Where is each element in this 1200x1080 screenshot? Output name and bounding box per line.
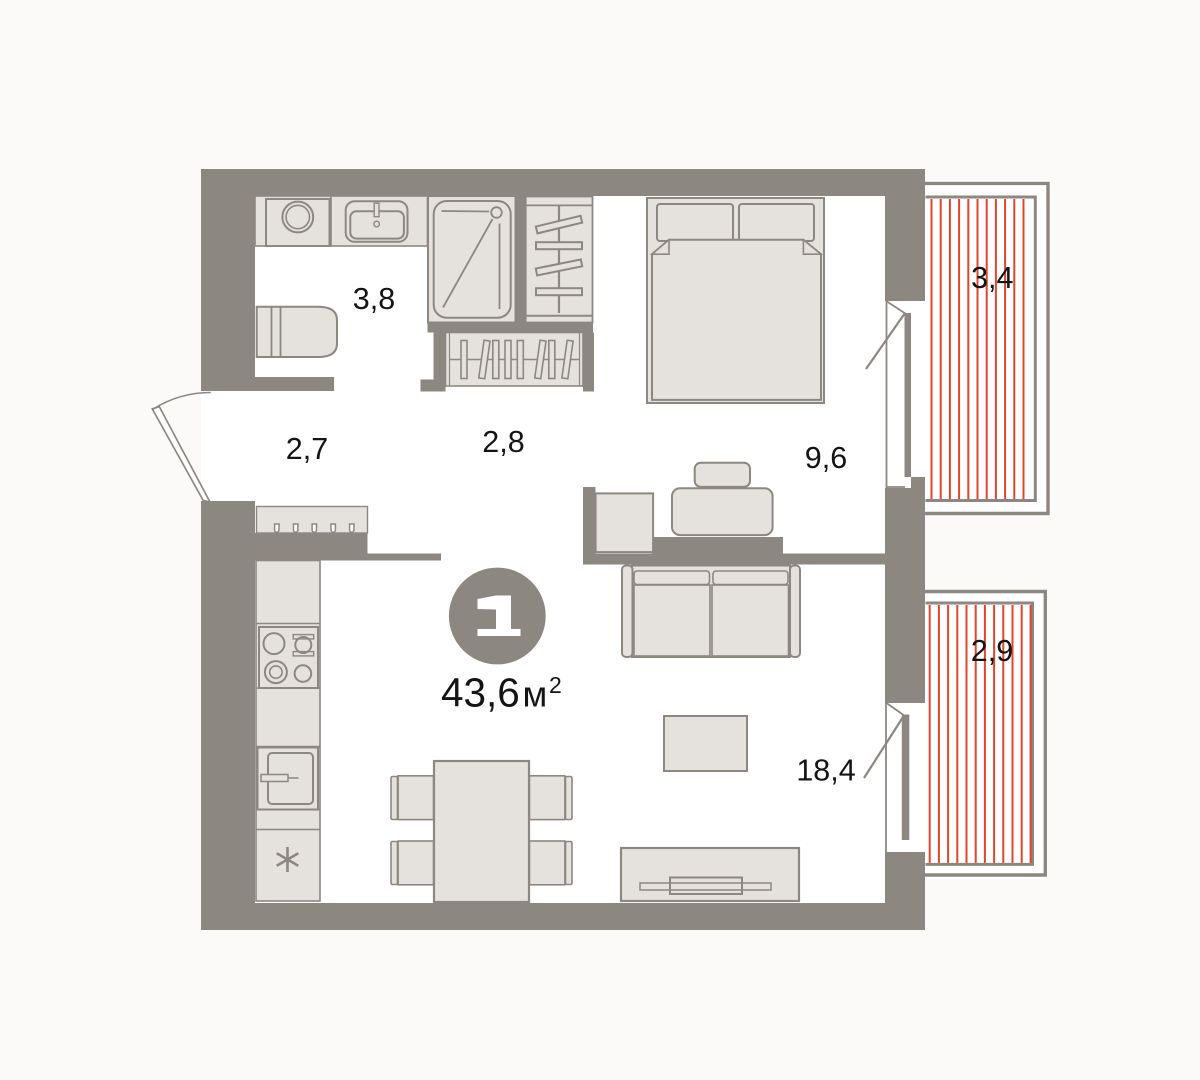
svg-text:9,6: 9,6 xyxy=(805,441,847,475)
svg-text:м: м xyxy=(523,674,548,715)
svg-text:3,4: 3,4 xyxy=(971,261,1013,295)
svg-text:3,8: 3,8 xyxy=(353,282,395,316)
svg-text:2: 2 xyxy=(549,672,562,698)
svg-text:18,4: 18,4 xyxy=(796,754,855,788)
svg-text:2,8: 2,8 xyxy=(482,425,524,459)
svg-text:2,7: 2,7 xyxy=(286,432,328,466)
svg-text:2,9: 2,9 xyxy=(971,634,1013,668)
svg-text:43,6: 43,6 xyxy=(441,670,520,716)
